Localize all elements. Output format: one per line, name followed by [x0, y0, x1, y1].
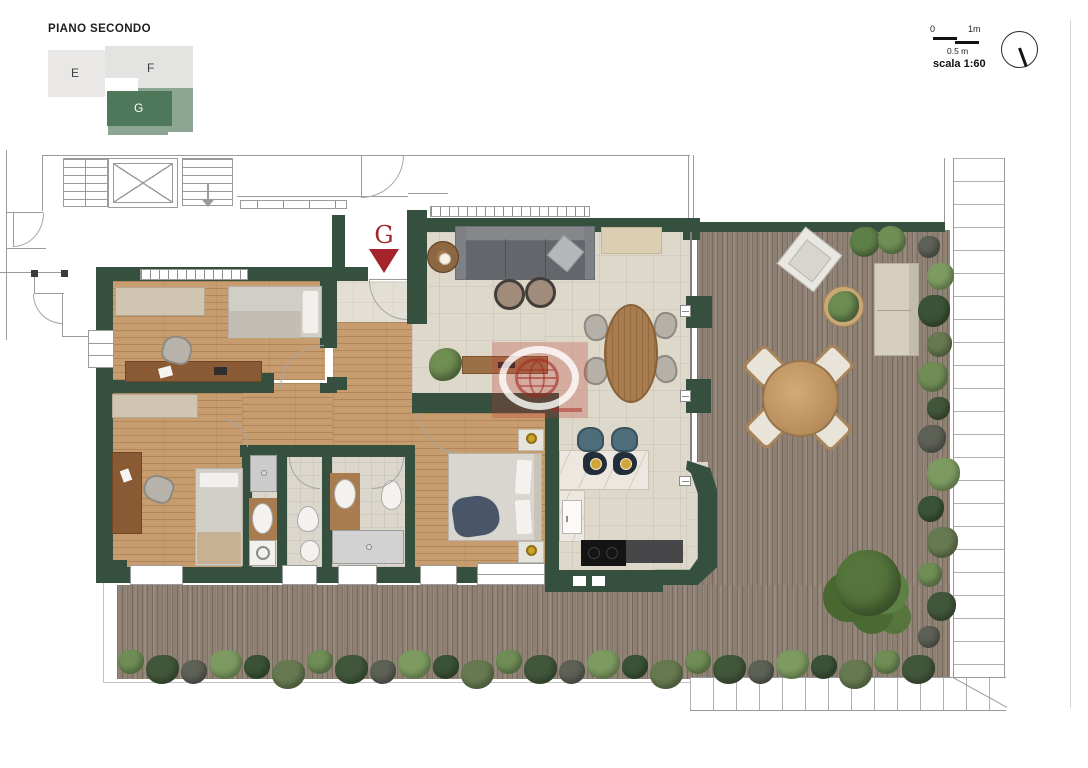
key-plan-unit-g-tail — [108, 125, 168, 135]
desk-paper — [120, 468, 133, 482]
place-setting — [583, 452, 607, 475]
nightstand-lamp — [526, 545, 537, 556]
globe-circle — [515, 358, 559, 398]
outdoor-sofa-cushion-line — [877, 310, 911, 311]
fridge — [562, 500, 582, 534]
balcony-edge-line — [103, 583, 104, 683]
door-arc — [361, 155, 404, 198]
scale-1m-label: 1m — [968, 24, 981, 34]
dresser — [115, 287, 205, 316]
bed-headboard — [534, 454, 541, 540]
stairs-arrow-stem — [207, 184, 209, 200]
desk — [125, 361, 262, 382]
fridge-handle — [566, 516, 568, 522]
wall-post — [31, 270, 38, 277]
double-bed — [448, 453, 542, 541]
radiator — [430, 206, 590, 217]
window-french-door — [477, 563, 545, 585]
wall-segment — [405, 452, 415, 567]
elevator-cab — [113, 163, 173, 203]
balcony-deck — [117, 585, 950, 679]
bed-pillow — [199, 472, 239, 488]
wall-segment — [545, 413, 559, 578]
stairs-midline — [85, 158, 86, 207]
wall-vent — [573, 576, 586, 586]
scale-ratio-label: scala 1:60 — [933, 58, 986, 70]
window-symbol — [680, 390, 691, 402]
washing-machine — [249, 540, 276, 566]
globe-parallel — [520, 385, 554, 387]
watermark-text-smudge — [552, 408, 582, 412]
glazing-line — [690, 232, 692, 462]
wall-post — [61, 270, 68, 277]
sofa-arm — [584, 227, 594, 279]
desk-laptop — [214, 367, 227, 375]
window-frame-line — [478, 574, 544, 575]
pergola-band-bottom — [690, 677, 1006, 711]
desk — [112, 452, 142, 534]
plate — [620, 458, 632, 470]
door-leaf — [13, 213, 14, 247]
key-plan: E F G — [0, 0, 220, 150]
cooktop — [581, 540, 626, 566]
corridor-line — [237, 196, 408, 197]
bar-chair — [611, 427, 638, 452]
scale-zero-label: 0 — [930, 24, 935, 34]
sofa-back — [456, 227, 594, 241]
bed-pillow — [514, 458, 533, 495]
sofa-cushion-line — [545, 239, 546, 277]
window — [282, 565, 317, 585]
sink — [252, 503, 273, 534]
kitchen-island — [626, 540, 683, 563]
stairs-arrow-icon — [202, 200, 214, 207]
globe-parallel — [520, 369, 554, 371]
bed-throw-blanket — [450, 493, 501, 539]
corridor-cabinet — [240, 200, 347, 209]
sofa — [455, 226, 595, 280]
outdoor-dining-table — [762, 360, 839, 437]
key-plan-label-f: F — [147, 61, 154, 75]
window — [130, 565, 183, 585]
scale-bar: 0 1m 0.5 m scala 1:60 — [900, 15, 1010, 75]
wardrobe — [112, 394, 198, 418]
building-outline-line — [693, 155, 694, 222]
building-outline-line — [688, 155, 689, 222]
building-outline-line — [6, 248, 46, 249]
window-symbol — [679, 476, 691, 486]
door-arc — [13, 213, 44, 247]
window — [338, 565, 377, 585]
burner — [606, 547, 618, 559]
wall-vent — [592, 576, 605, 586]
bed-pillow — [302, 290, 319, 334]
entrance-marker: G — [356, 222, 412, 280]
single-bed — [228, 286, 322, 338]
shower-tray — [332, 530, 404, 564]
door-leaf — [361, 155, 362, 198]
potted-plant — [828, 291, 859, 322]
shower — [250, 455, 277, 492]
burner — [588, 547, 600, 559]
entrance-arrow-icon — [369, 249, 399, 273]
wall-segment — [320, 281, 337, 348]
key-plan-label-e: E — [71, 66, 79, 80]
scale-bar-segment — [933, 37, 957, 40]
door-arc — [33, 294, 63, 324]
floor-plan-sheet: PIANO SECONDO E F G 0 1m 0.5 m scala 1:6… — [0, 0, 1088, 768]
terrace-parapet — [697, 222, 945, 232]
wall-segment — [96, 278, 113, 573]
window-frame-line — [89, 343, 113, 344]
compass-icon — [1001, 31, 1038, 68]
table-lamp — [439, 253, 451, 265]
bed-blanket — [229, 311, 301, 338]
building-outline-line — [6, 150, 7, 340]
sink — [334, 479, 356, 509]
globe-icon — [499, 346, 579, 410]
scale-bar-segment — [955, 41, 979, 44]
boundary-line — [1070, 20, 1071, 708]
pouf — [494, 279, 525, 310]
side-table — [427, 241, 459, 273]
lounge-chair-cushion — [788, 239, 832, 283]
window-frame-line — [89, 355, 113, 356]
bar-chair — [577, 427, 604, 452]
terrace-bush — [878, 226, 906, 254]
window — [88, 330, 114, 368]
dining-table — [604, 304, 658, 403]
pergola-band-right — [953, 158, 1005, 679]
wall-segment — [332, 215, 345, 270]
entrance-unit-label: G — [356, 222, 412, 248]
plate — [590, 458, 602, 470]
radiator — [140, 269, 248, 280]
single-bed — [195, 468, 243, 566]
terrace-tree — [835, 550, 901, 616]
watermark-logo — [492, 342, 588, 418]
balcony-edge-line — [103, 682, 691, 683]
bidet — [300, 540, 320, 562]
elevator — [108, 158, 178, 208]
bed-blanket — [197, 532, 241, 564]
rug — [601, 227, 662, 254]
shower-drain — [261, 470, 267, 476]
washer-door — [256, 546, 270, 560]
bed-pillow — [514, 498, 533, 535]
compass-needle — [1018, 47, 1028, 67]
wall-segment — [277, 452, 287, 567]
building-outline-line — [34, 277, 35, 294]
toilet — [297, 506, 319, 532]
building-outline-line — [42, 155, 43, 211]
sofa-cushion-line — [505, 239, 506, 277]
window — [420, 565, 457, 585]
building-outline-line — [944, 158, 945, 230]
key-plan-label-g: G — [134, 101, 143, 115]
pouf — [525, 277, 556, 308]
building-outline-line — [62, 293, 63, 337]
shower-drain — [366, 544, 372, 550]
nightstand-lamp — [526, 433, 537, 444]
scale-half-label: 0.5 m — [947, 46, 968, 56]
outdoor-sofa — [874, 263, 919, 356]
window-symbol — [680, 305, 691, 317]
desk-paper — [158, 365, 173, 378]
globe-equator — [518, 377, 556, 379]
corridor-line — [408, 193, 448, 194]
